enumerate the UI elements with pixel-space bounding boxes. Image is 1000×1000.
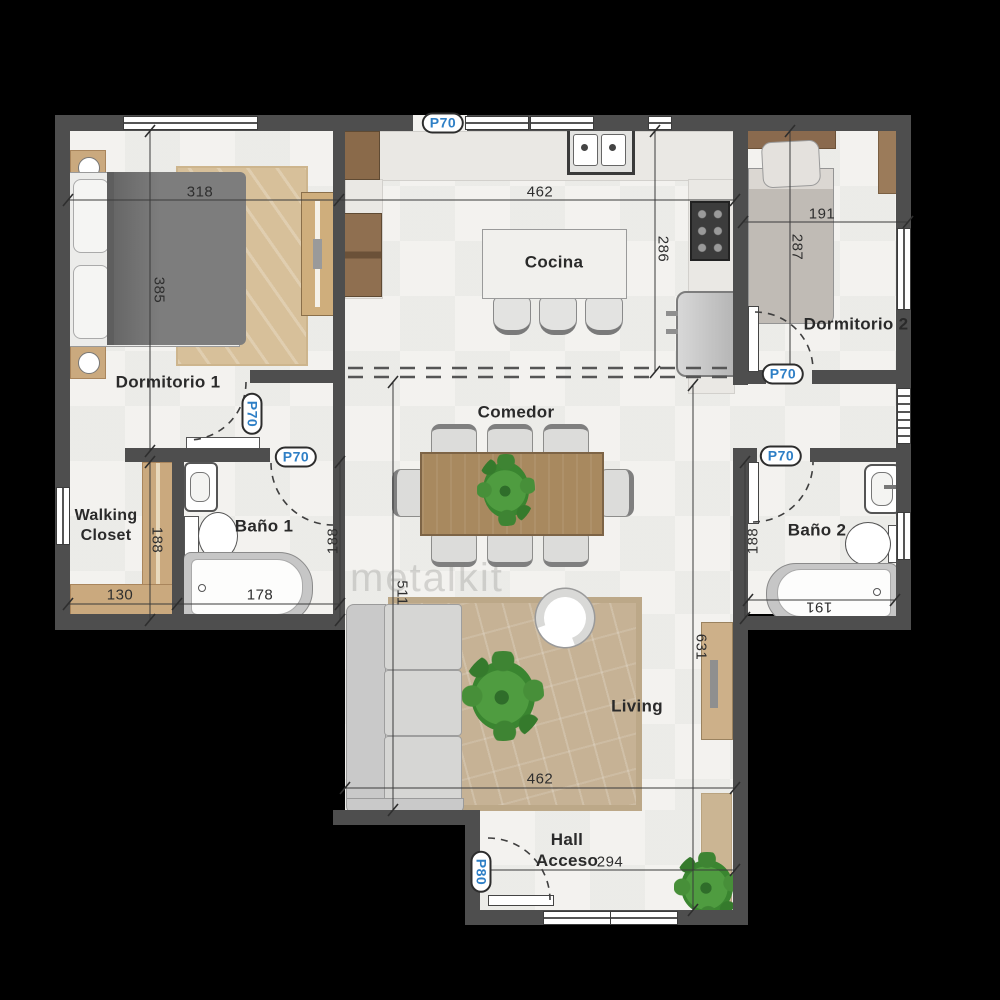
dim-bath2-tub: 191 (806, 599, 833, 616)
door-tag-bano2: P70 (760, 446, 802, 467)
dresser-handle (313, 239, 322, 269)
window-hall-1 (543, 911, 611, 925)
window-closet-left (56, 487, 70, 545)
dim-right-depth: 631 (693, 634, 710, 661)
dim-bath2-depth: 188 (745, 528, 762, 555)
sink-basin (190, 472, 210, 502)
toilet-bowl (845, 522, 891, 566)
dim-bath1-depth: 188 (325, 528, 342, 555)
toilet-bano2 (845, 522, 903, 566)
dim-bath1-tub: 178 (247, 587, 274, 604)
dim-dorm1-width: 318 (187, 184, 214, 201)
pillow (73, 265, 109, 339)
fridge-handle (666, 329, 678, 334)
bed-dormitorio1 (68, 172, 240, 347)
window-kitchen-2 (530, 116, 594, 130)
kitchen-counter-top (345, 131, 735, 181)
sofa-cushion (384, 736, 462, 802)
room-label-comedor: Comedor (478, 401, 555, 422)
door-tag-bano1: P70 (275, 447, 317, 468)
bathtub-drain (873, 588, 881, 596)
room-label-living: Living (611, 695, 663, 716)
wall-bano2-top-stub (733, 448, 757, 462)
kitchen-cabinet-1 (344, 131, 380, 180)
window-kitchen-1 (465, 116, 529, 130)
window-kitchen-small (648, 116, 672, 130)
sofa (346, 604, 464, 812)
sink-bano1 (184, 462, 218, 512)
door-leaf-bano2 (748, 462, 759, 524)
window-dorm1-top (123, 116, 258, 130)
wall-living-bottom (333, 810, 480, 825)
sofa-cushion (384, 604, 462, 670)
wall-dorm1-south (250, 370, 345, 383)
lamp-icon (78, 352, 100, 374)
refrigerator (676, 291, 738, 377)
kitchen-sink (567, 127, 635, 175)
wall-kitchen-dorm2 (733, 131, 748, 385)
dim-hall-width: 294 (597, 854, 624, 871)
wall-dorm2-south-b (812, 370, 911, 384)
dim-closet-width: 130 (107, 587, 134, 604)
dim-kitchen-depth: 286 (655, 236, 672, 263)
wall-closet-bottom (55, 614, 345, 630)
door-tag-hall-entry: P80 (471, 851, 492, 893)
cooktop (690, 201, 730, 261)
wall-bano2-bottom (748, 616, 911, 630)
window-hall-2 (610, 911, 678, 925)
dim-dorm1-depth: 385 (151, 277, 168, 304)
tv (710, 660, 718, 708)
wall-living-right (733, 630, 748, 925)
plant-hall (681, 860, 733, 914)
pillow-dormitorio2 (761, 140, 821, 189)
window-dorm2-right (897, 228, 911, 310)
dim-dorm2-depth: 287 (789, 234, 806, 261)
door-tag-dormitorio1: P70 (242, 393, 263, 435)
watermark: metalkit (350, 556, 504, 601)
dim-closet-depth: 188 (149, 527, 166, 554)
sofa-back (346, 604, 386, 810)
door-leaf-hall (488, 895, 554, 906)
room-label-bano2: Baño 2 (788, 519, 846, 540)
bathtub-drain (198, 584, 206, 592)
door-tag-dormitorio2: P70 (762, 364, 804, 385)
pillow (73, 179, 109, 253)
plant-dining-table (483, 462, 529, 518)
room-label-bano1: Baño 1 (235, 515, 293, 536)
wall-left (55, 115, 70, 630)
shelf-dormitorio2 (878, 128, 898, 194)
door-tag-kitchen-balcony: P70 (422, 113, 464, 134)
sink-drain (581, 144, 588, 151)
dresser-dormitorio1 (301, 192, 335, 316)
plant-living (471, 661, 535, 731)
kitchen-stool (539, 296, 577, 335)
sink-drain (609, 144, 616, 151)
door-leaf-dormitorio2 (748, 306, 759, 372)
floor-plan-canvas: Dormitorio 1 Dormitorio 2 Cocina Comedor… (0, 0, 1000, 1000)
nightstand-bottom (70, 345, 106, 379)
kitchen-stool (585, 296, 623, 335)
wall-bano2-top (810, 448, 911, 462)
sofa-cushion (384, 670, 462, 736)
kitchen-cabinet-2 (344, 213, 382, 297)
room-label-dormitorio2: Dormitorio 2 (804, 313, 909, 334)
room-label-cocina: Cocina (525, 251, 583, 272)
dim-kitchen-width: 462 (527, 184, 554, 201)
wall-closet-bath-divider (172, 462, 184, 620)
room-label-dormitorio1: Dormitorio 1 (116, 371, 221, 392)
kitchen-stool (493, 296, 531, 335)
sink-basin (871, 472, 893, 506)
dim-dorm2-width: 191 (809, 206, 836, 223)
room-label-hall-acceso: Hall Acceso (536, 829, 598, 872)
window-bano2-right (897, 512, 911, 560)
room-label-walking-closet: Walking Closet (75, 506, 138, 546)
toilet-tank (184, 516, 199, 556)
fridge-handle (666, 311, 678, 316)
dim-living-width: 462 (527, 771, 554, 788)
wall-closet-top (125, 448, 270, 462)
window-shaft-right (897, 388, 911, 444)
duvet (107, 172, 246, 345)
